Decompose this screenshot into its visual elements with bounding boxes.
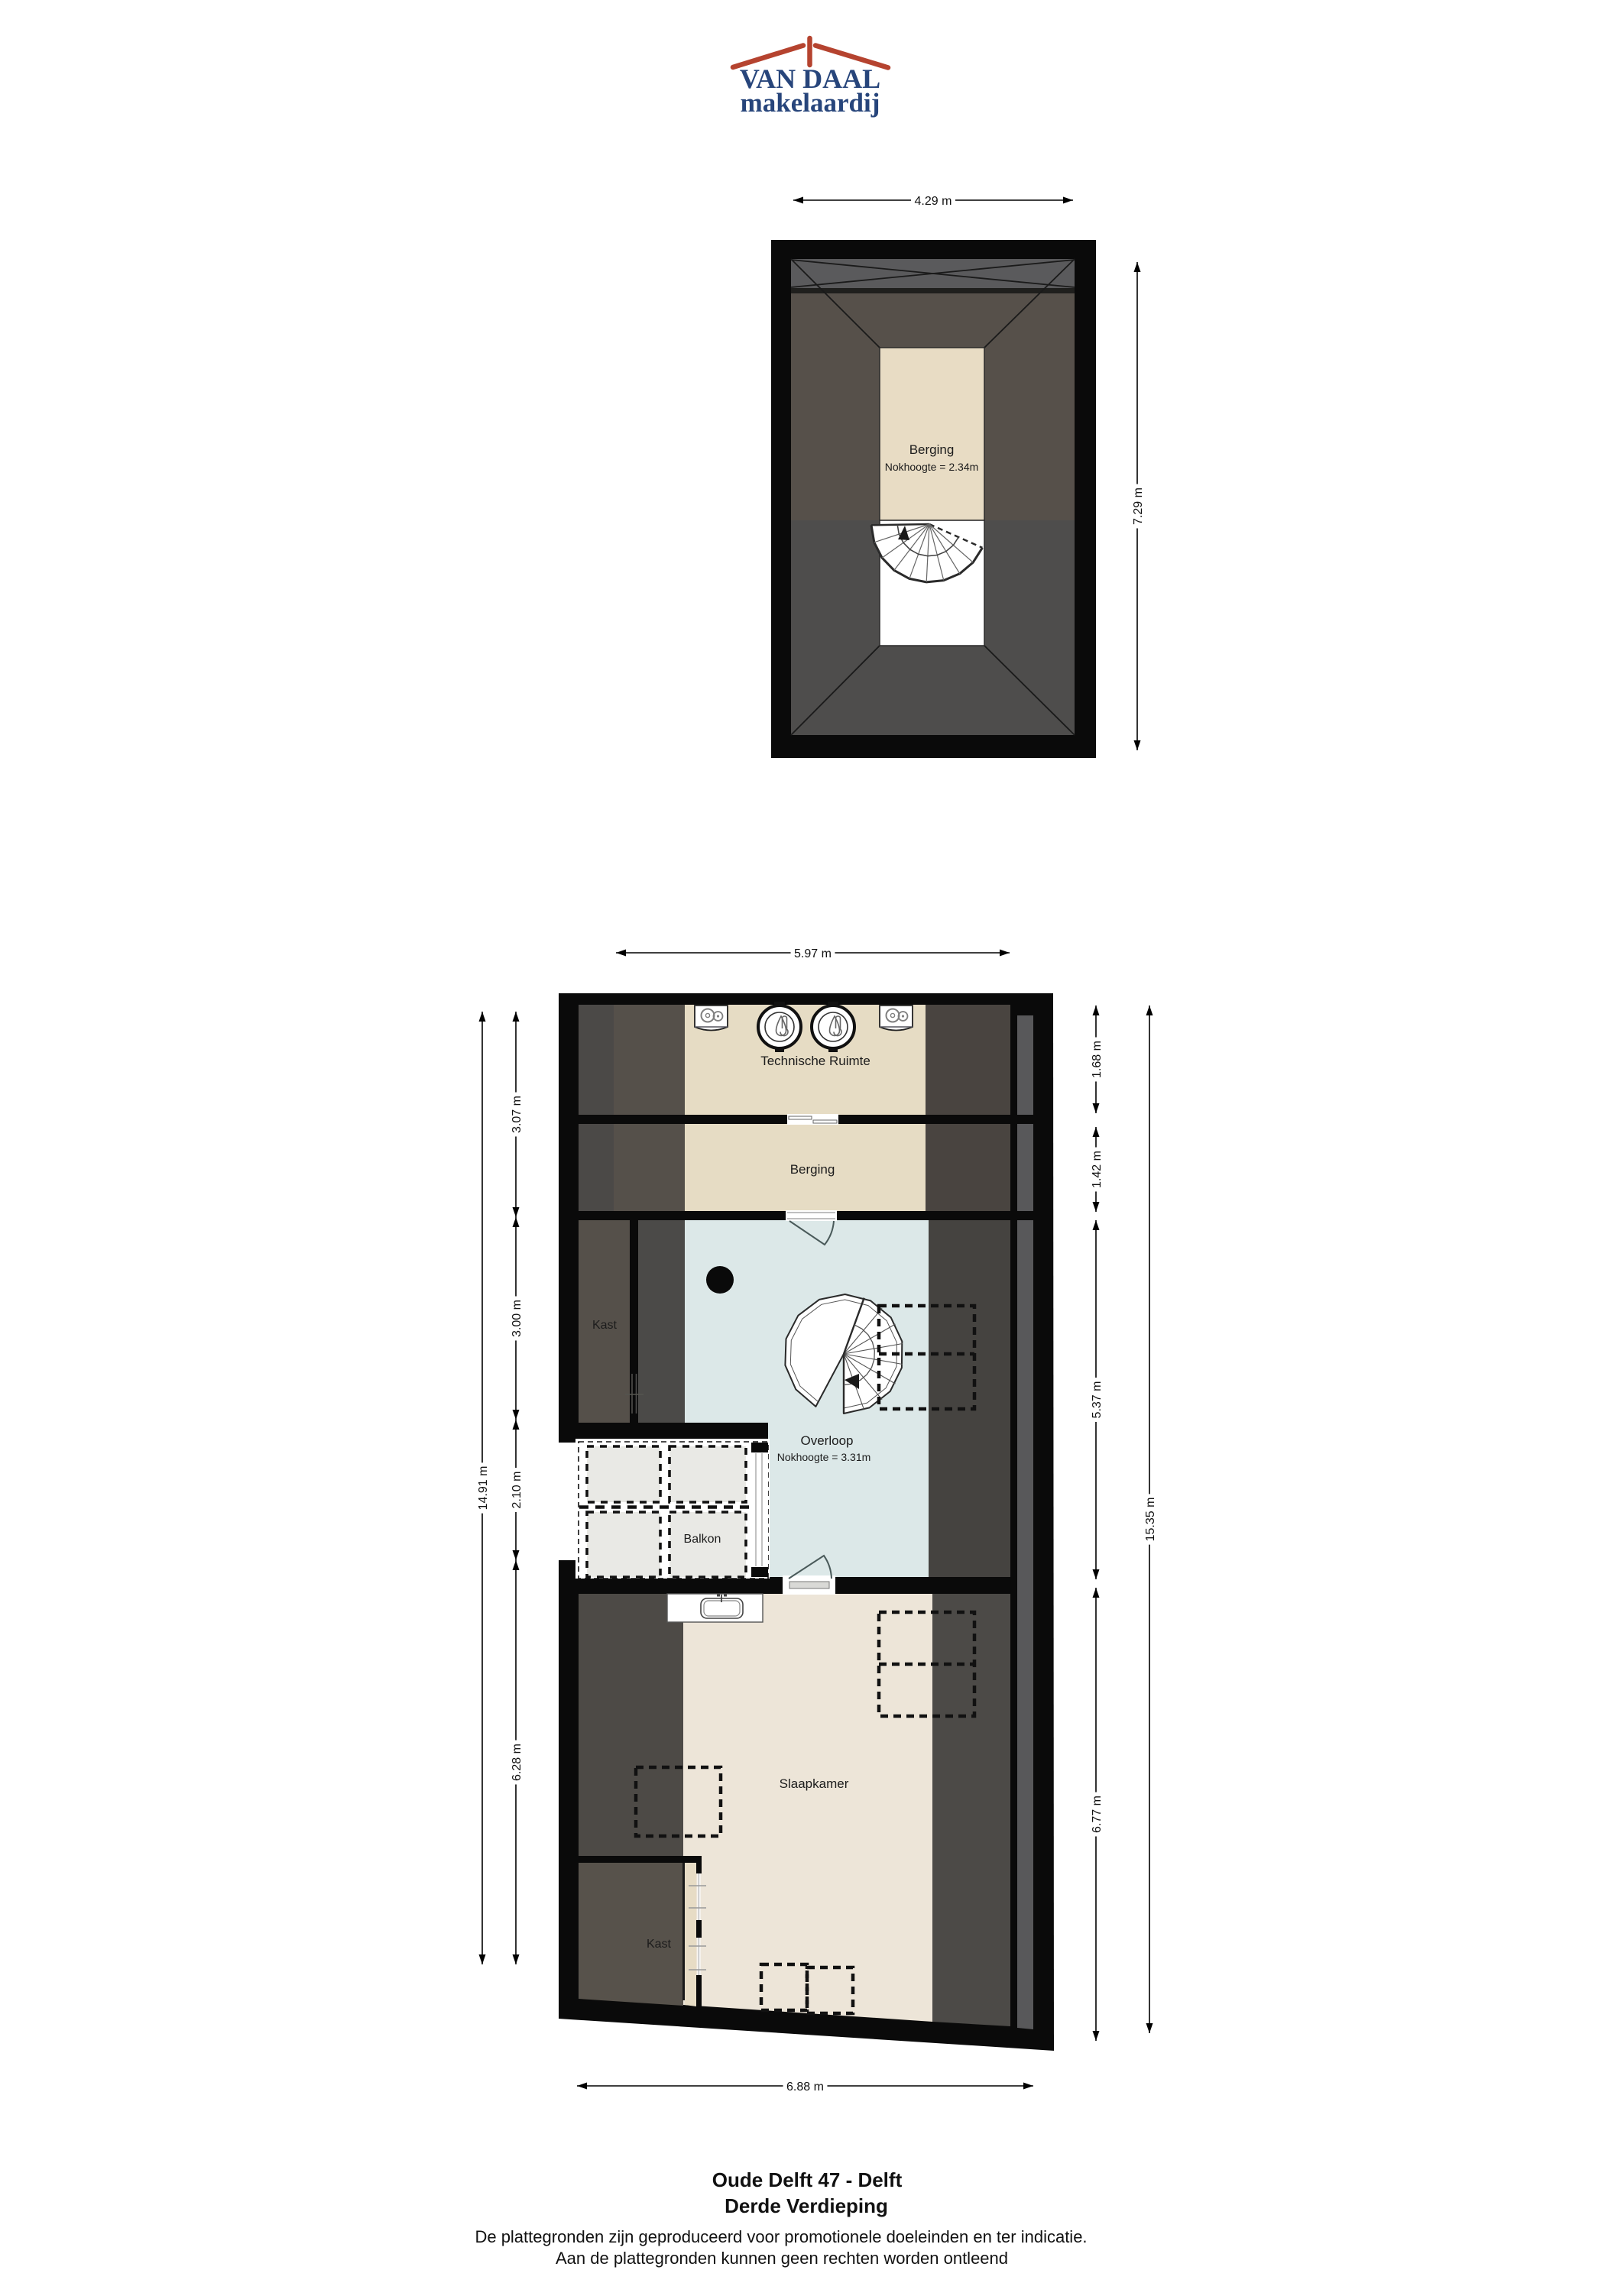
svg-text:3.07 m: 3.07 m	[511, 1096, 524, 1133]
svg-text:Nokhoogte = 2.34m: Nokhoogte = 2.34m	[885, 461, 979, 473]
svg-text:2.10 m: 2.10 m	[511, 1472, 524, 1509]
svg-text:Technische Ruimte: Technische Ruimte	[760, 1054, 870, 1068]
svg-text:4.29 m: 4.29 m	[915, 195, 952, 208]
svg-text:Derde Verdieping: Derde Verdieping	[725, 2194, 888, 2217]
svg-text:7.29 m: 7.29 m	[1132, 487, 1145, 525]
svg-text:Berging: Berging	[790, 1162, 835, 1177]
svg-text:Aan de plattegronden kunnen ge: Aan de plattegronden kunnen geen rechten…	[556, 2249, 1008, 2268]
svg-text:3.00 m: 3.00 m	[511, 1300, 524, 1337]
svg-text:makelaardij: makelaardij	[741, 88, 880, 118]
svg-text:15.35 m: 15.35 m	[1144, 1498, 1157, 1542]
svg-text:Overloop: Overloop	[801, 1433, 854, 1448]
svg-text:Kast: Kast	[647, 1938, 672, 1951]
svg-text:6.88 m: 6.88 m	[786, 2081, 824, 2094]
svg-text:Berging: Berging	[909, 442, 955, 457]
svg-text:Nokhoogte = 3.31m: Nokhoogte = 3.31m	[777, 1451, 871, 1463]
svg-text:Balkon: Balkon	[684, 1533, 721, 1546]
svg-text:Oude Delft 47 - Delft: Oude Delft 47 - Delft	[712, 2168, 903, 2191]
svg-text:5.97 m: 5.97 m	[794, 947, 832, 960]
svg-text:1.68 m: 1.68 m	[1091, 1041, 1104, 1078]
svg-text:6.77 m: 6.77 m	[1091, 1796, 1104, 1833]
svg-text:14.91 m: 14.91 m	[477, 1466, 490, 1511]
svg-text:6.28 m: 6.28 m	[511, 1744, 524, 1781]
svg-text:De plattegronden zijn geproduc: De plattegronden zijn geproduceerd voor …	[475, 2227, 1087, 2246]
svg-text:5.37 m: 5.37 m	[1091, 1381, 1104, 1419]
svg-text:1.42 m: 1.42 m	[1091, 1151, 1104, 1188]
svg-text:Kast: Kast	[592, 1319, 618, 1332]
svg-text:Slaapkamer: Slaapkamer	[780, 1776, 849, 1791]
